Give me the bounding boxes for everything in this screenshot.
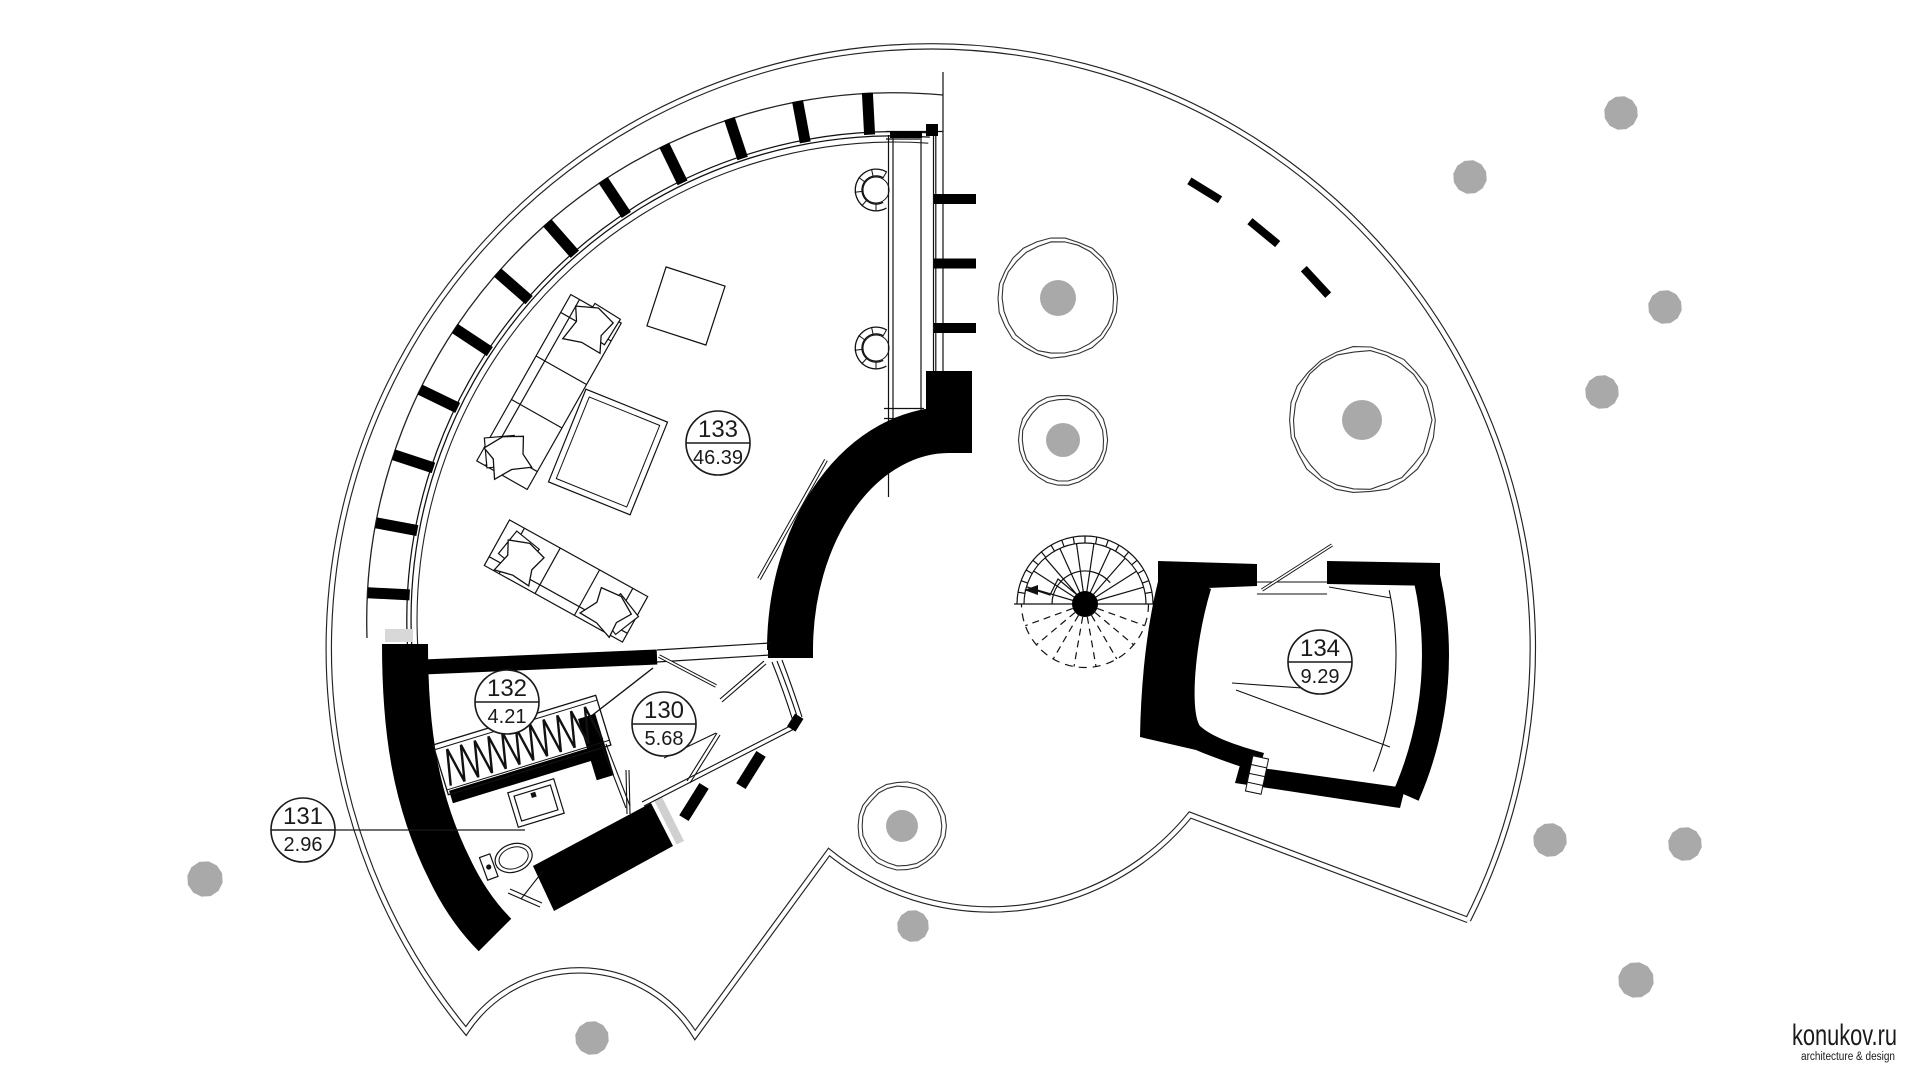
svg-text:132: 132 [487, 675, 527, 702]
svg-text:131: 131 [283, 803, 323, 830]
svg-text:2.96: 2.96 [284, 834, 323, 856]
svg-text:46.39: 46.39 [693, 447, 743, 469]
svg-text:133: 133 [698, 416, 738, 443]
svg-text:130: 130 [644, 697, 684, 724]
svg-text:architecture & design: architecture & design [1801, 1051, 1895, 1063]
svg-text:134: 134 [1300, 635, 1340, 662]
svg-text:konukov.ru: konukov.ru [1792, 1019, 1897, 1052]
svg-text:4.21: 4.21 [488, 706, 527, 728]
svg-text:5.68: 5.68 [645, 728, 684, 750]
svg-text:9.29: 9.29 [1301, 666, 1340, 688]
